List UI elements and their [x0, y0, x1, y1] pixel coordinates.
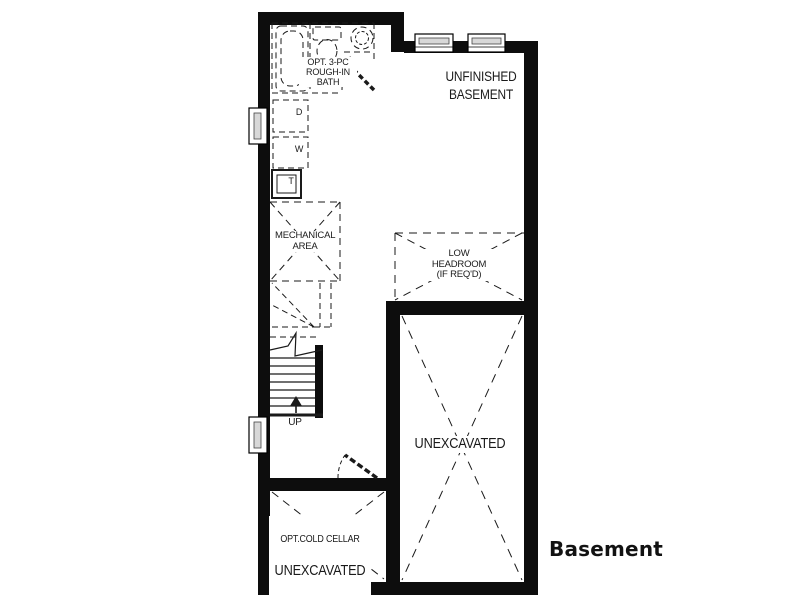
cold-cellar-label: OPT.COLD CELLAR UNEXCAVATED: [269, 516, 371, 597]
cold-cellar-label-line2: UNEXCAVATED: [269, 563, 371, 580]
plan-caption: Basement: [549, 537, 663, 561]
top-window-2-icon: [468, 34, 505, 52]
stair-break-line: [270, 333, 322, 356]
washer-label: W: [293, 144, 305, 154]
low-headroom-label: LOW HEADROOM (IF REQ'D): [419, 249, 499, 281]
dryer-label: D: [293, 107, 305, 117]
left-window-2-icon: [249, 417, 267, 453]
cold-cellar-door: [338, 455, 377, 478]
unfinished-basement-label: UNFINISHED BASEMENT: [425, 67, 537, 103]
mechanical-area-label: MECHANICAL AREA: [275, 231, 335, 252]
stair-side-wall: [315, 345, 323, 418]
cold-cellar-label-line1: OPT.COLD CELLAR: [269, 534, 371, 546]
left-wall: [258, 12, 270, 595]
unexcavated-label: UNEXCAVATED: [405, 436, 516, 453]
unexcavated-left-wall: [386, 301, 400, 582]
right-wall: [524, 41, 538, 595]
cold-cellar-wall: [270, 478, 400, 491]
bath-label: OPT. 3-PC ROUGH-IN BATH: [299, 57, 357, 87]
cold-cellar-door-leaf: [345, 455, 377, 478]
tank-label: T: [285, 176, 297, 186]
left-window-1-icon: [249, 108, 267, 144]
top-window-1-icon: [415, 34, 453, 52]
unexcavated-top-wall: [386, 301, 524, 315]
floorplan-page: OPT. 3-PC ROUGH-IN BATH UNFINISHED BASEM…: [0, 0, 800, 600]
cold-cellar-door-swing-arc: [338, 455, 345, 478]
basement-floorplan-drawing: [0, 0, 800, 600]
top-wall-bath-section: [258, 12, 404, 25]
sink-icon: [351, 27, 373, 49]
step-wall: [391, 12, 404, 52]
stairs-up-label: UP: [284, 417, 306, 428]
winder-treads-dashed: [270, 283, 331, 337]
